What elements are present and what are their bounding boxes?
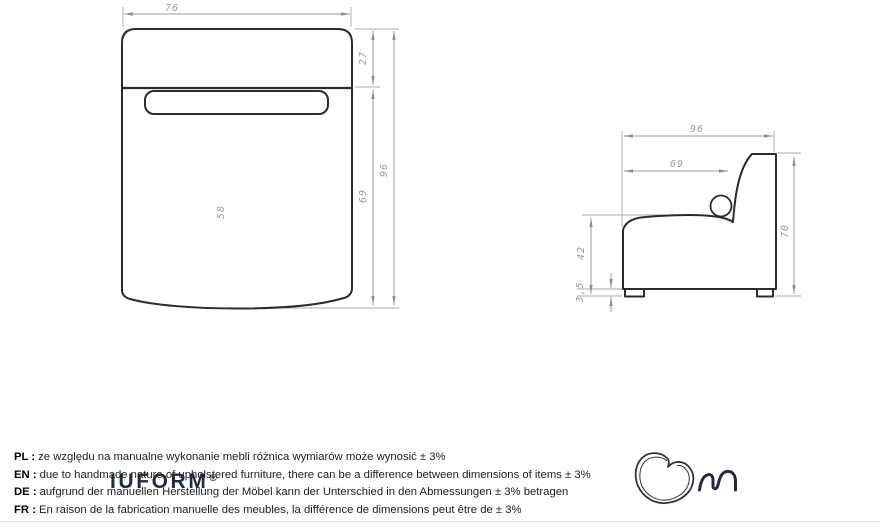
side-view-front-leg: [625, 289, 644, 297]
side-seat-height-dim-label: 42: [576, 246, 587, 260]
disclaimer-lang-pl: PL :: [14, 451, 35, 463]
front-inner-length-dim-label: 58: [216, 205, 227, 219]
logo-bean-icon: [634, 451, 698, 507]
side-view-drawing: 96 69 70 42 3,5: [550, 120, 815, 320]
front-total-depth-dim-label: 96: [379, 163, 390, 177]
logo-wordmark: IUFORM®: [110, 469, 217, 492]
disclaimer-text-pl: ze względu na manualne wykonanie mebli r…: [38, 451, 445, 463]
side-view-body-outline: [623, 154, 776, 289]
disclaimer-row-fr: FR :En raison de la fabrication manuelle…: [14, 502, 664, 520]
logo-m-glyph-icon: [698, 469, 740, 492]
front-view-body-outline: [122, 29, 352, 309]
front-view-drawing: 76 27 69 96 58: [100, 0, 410, 330]
side-seat-depth-dim-label: 69: [670, 159, 684, 170]
side-view-lumbar-roll: [711, 196, 732, 217]
side-total-depth-dim-label: 96: [690, 124, 704, 135]
front-view-cushion-pill: [145, 91, 328, 114]
disclaimer-lang-de: DE :: [14, 486, 37, 498]
disclaimer-lang-fr: FR :: [14, 504, 36, 516]
technical-drawing-page: 76 27 69 96 58: [0, 0, 880, 530]
side-leg-height-dim-label: 3,5: [575, 281, 586, 303]
disclaimer-lang-en: EN :: [14, 469, 37, 481]
side-total-height-dim-label: 70: [780, 224, 791, 238]
logo-brand-text: IUFORM: [110, 470, 208, 493]
side-view-back-leg: [757, 289, 773, 297]
disclaimer-text-fr: En raison de la fabrication manuelle des…: [39, 504, 522, 516]
disclaimer-row-pl: PL :ze względu na manualne wykonanie meb…: [14, 449, 664, 467]
miuform-logo: [632, 448, 880, 510]
registered-trademark-symbol: ®: [209, 473, 216, 484]
front-width-dim-label: 76: [165, 3, 179, 14]
front-backrest-depth-dim-label: 27: [358, 51, 369, 65]
bottom-divider-line: [0, 521, 880, 522]
front-seat-depth-dim-label: 69: [358, 189, 369, 203]
